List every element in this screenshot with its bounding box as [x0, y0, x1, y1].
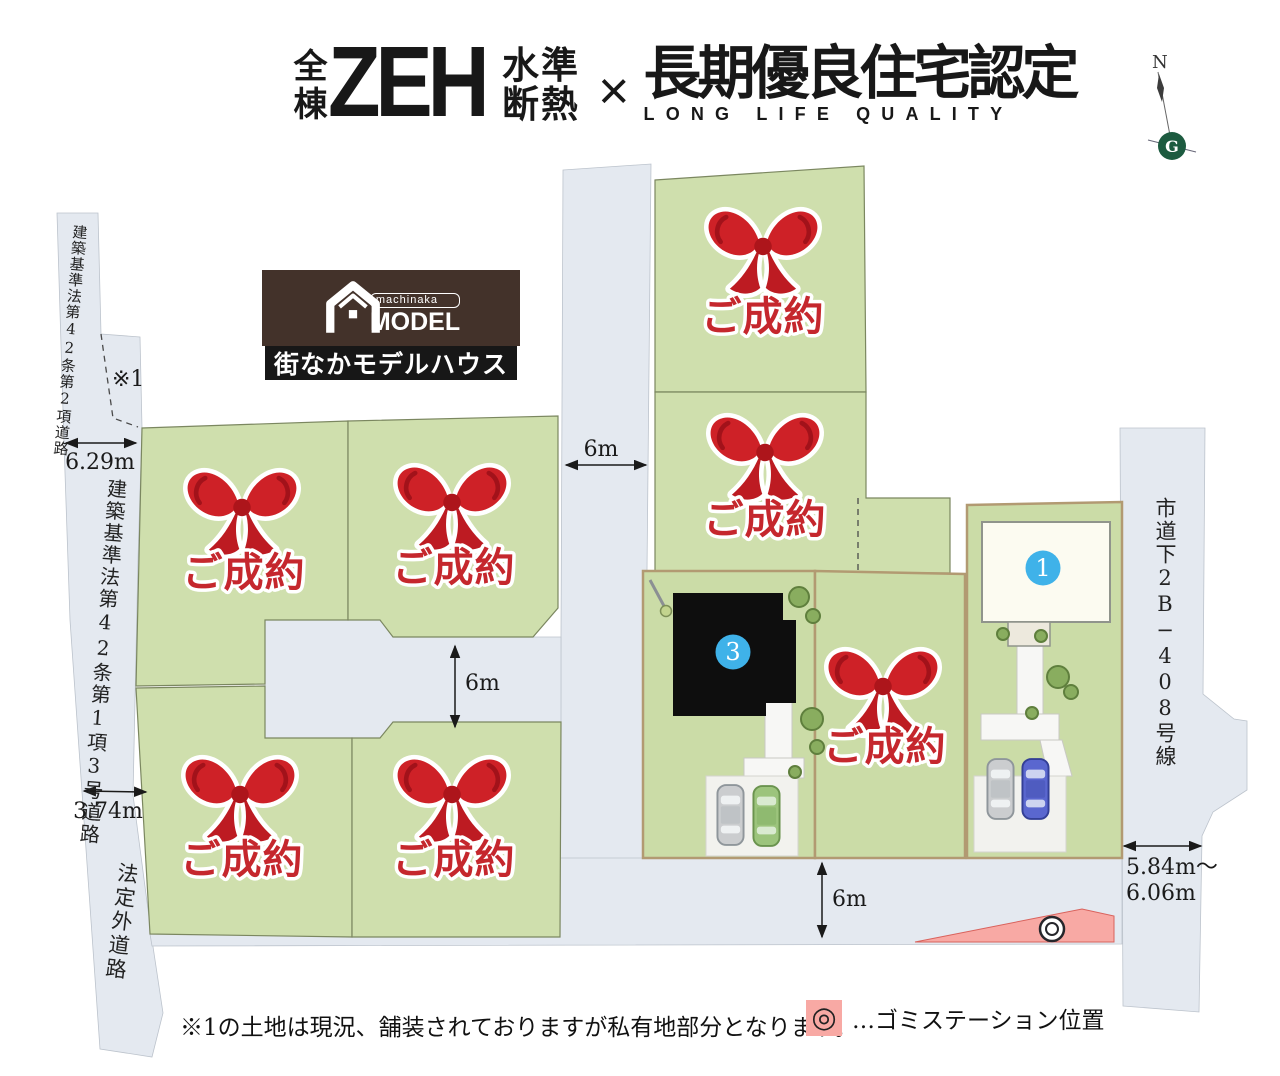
badge-brand-large: MODEL [370, 310, 460, 335]
road-center-corridor [265, 620, 561, 738]
bush-icon [1035, 630, 1047, 642]
sold-label: ご成約 [824, 725, 947, 769]
compass-logo-letter: G [1165, 137, 1179, 156]
car-icon [717, 785, 743, 845]
dim-right-road-2: 6.06m [1126, 881, 1196, 906]
header-title: 長期優良住宅認定 [644, 44, 1076, 104]
header-zeh-sub-bottom: 断熱 [502, 85, 580, 124]
dim-right-road-1: 5.84m〜 [1126, 855, 1218, 880]
site-plan-map: 3 1 6.29m [0, 0, 1280, 1076]
bush-icon [810, 740, 824, 754]
header-zeh-sub-top: 水準 [502, 46, 580, 85]
car-icon [987, 759, 1013, 819]
header-separator: × [598, 60, 630, 122]
sold-label: ご成約 [704, 498, 827, 542]
footer-note: ※1の土地は現況、舗装されておりますが私有地部分となります。 [180, 1008, 857, 1042]
garbage-station-marker-inner [1046, 923, 1058, 935]
bush-icon [1064, 685, 1078, 699]
lot1-approach [981, 714, 1059, 740]
badge-brand: machinaka MODEL [370, 293, 460, 335]
garbage-legend-label: …ゴミステーション位置 [852, 1001, 1105, 1035]
model-house-caption: 街なかモデルハウス [265, 346, 517, 380]
dim-middle-road: 6m [465, 671, 500, 696]
dim-top-road: 6m [584, 437, 619, 462]
header-zeh: ZEH [328, 42, 485, 122]
header-zentou: 全棟 [288, 48, 326, 124]
header-zeh-sub: 水準 断熱 [502, 46, 580, 124]
bush-icon [789, 587, 809, 607]
site-plan-flyer: 3 1 6.29m [0, 0, 1280, 1076]
garbage-legend: ◎ …ゴミステーション位置 [806, 1000, 1105, 1036]
header: 全棟 ZEH 水準 断熱 × 長期優良住宅認定 LONG LIFE QUALIT… [288, 42, 1076, 125]
badge-brand-small: machinaka [370, 293, 460, 308]
note1-marker: ※1 [112, 367, 144, 392]
lot-left-d [348, 416, 558, 637]
sold-label: ご成約 [393, 838, 516, 882]
bush-icon [1047, 666, 1069, 688]
model-house-badge: machinaka MODEL 街なかモデルハウス [262, 270, 520, 380]
header-title-block: 長期優良住宅認定 LONG LIFE QUALITY [644, 44, 1076, 125]
compass: N G [1128, 46, 1218, 161]
bush-icon [806, 609, 820, 623]
road-label-right: 市道下2B−408号線 [1150, 497, 1180, 768]
header-subtitle: LONG LIFE QUALITY [644, 104, 1076, 125]
sold-label: ご成約 [183, 551, 306, 595]
sold-label: ご成約 [393, 546, 516, 590]
bush-icon [997, 628, 1009, 640]
street-lamp-head-icon [661, 606, 672, 617]
lot1-number: 1 [1035, 554, 1050, 582]
sold-label: ご成約 [702, 295, 825, 339]
car-icon [753, 786, 779, 846]
garbage-station-icon: ◎ [806, 1000, 842, 1036]
model-house-badge-top: machinaka MODEL [262, 270, 520, 346]
lot1-walkway [1017, 646, 1043, 716]
car-icon [1022, 759, 1048, 819]
bush-icon [1026, 707, 1038, 719]
bush-icon [789, 766, 801, 778]
road-right [1120, 428, 1247, 1012]
dim-left-top: 6.29m [65, 450, 135, 475]
road-center-vertical [560, 164, 651, 860]
dim-bottom-road: 6m [832, 887, 867, 912]
compass-north-label: N [1152, 52, 1168, 73]
sold-label: ご成約 [181, 838, 304, 882]
lot3-number: 3 [725, 638, 740, 666]
bush-icon [801, 708, 823, 730]
